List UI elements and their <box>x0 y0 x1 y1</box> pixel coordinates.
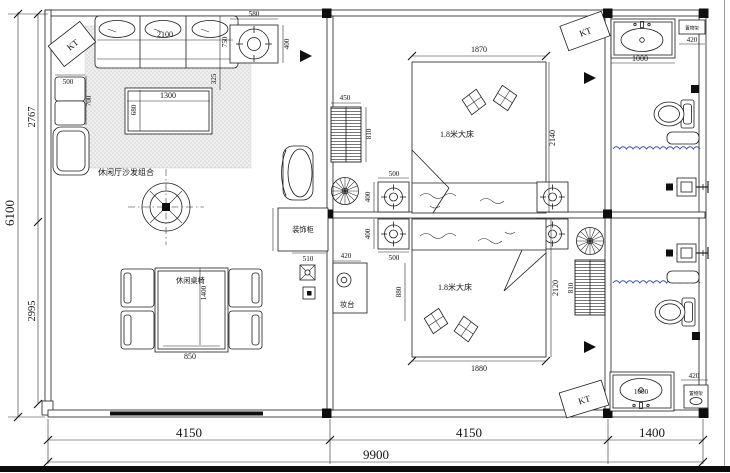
dim-sofa-w: 2100 <box>157 30 173 39</box>
dim-sofa-d: 750 <box>221 36 229 47</box>
dim-table-w: 850 <box>184 352 196 361</box>
label-sofa-zone: 休闲厅沙发组合 <box>98 167 154 177</box>
dim-light-h: 400 <box>283 38 291 49</box>
dim-bed1-l: 2140 <box>548 130 557 146</box>
marker-triangle-bath2 <box>584 341 596 353</box>
dim-bottom-total: 9900 <box>363 447 389 462</box>
dim-ns-top-d: 400 <box>364 191 372 202</box>
shelf-top-label: 置物架 <box>685 25 699 32</box>
dim-bed2-l: 2120 <box>551 280 560 296</box>
bottom-window-band <box>110 412 263 416</box>
side-tables <box>53 77 89 175</box>
fan-symbol-bed1 <box>332 178 359 205</box>
label-bed2: 1.8米大床 <box>438 282 472 292</box>
fan-symbol-bed2 <box>577 228 604 255</box>
wardrobe-unit-bed1 <box>331 107 361 162</box>
dim-side-d: 700 <box>85 95 93 106</box>
bath-mat-top <box>667 132 699 144</box>
floor-drain-bottom <box>692 332 700 340</box>
bath-mat-bottom <box>667 271 699 283</box>
shelf-bottom: 置物架 <box>684 385 708 408</box>
label-bed1: 1.8米大床 <box>440 129 474 139</box>
dim-left-lower: 2995 <box>27 301 38 322</box>
dim-bottom-left-bay: 4150 <box>176 425 202 440</box>
dim-coffee-w: 680 <box>130 104 138 115</box>
dim-shelf1-w: 420 <box>687 36 698 44</box>
dim-dresser-l: 880 <box>395 286 403 297</box>
power-outlet-symbols <box>300 265 315 299</box>
wardrobe-unit-bed2 <box>575 260 605 315</box>
dim-light-w: 580 <box>249 10 260 18</box>
toilet-top <box>654 100 694 128</box>
dimension-chain-left: 6100 2767 2995 <box>2 10 48 421</box>
dim-left-total: 6100 <box>2 200 17 226</box>
dim-bed2-w: 1880 <box>471 364 487 373</box>
dim-bottom-right-bay: 1400 <box>639 425 665 440</box>
dim-coffee-l: 1300 <box>160 91 176 100</box>
ceiling-light-symbol <box>230 25 278 63</box>
dim-ward2-d: 810 <box>567 282 575 293</box>
dim-ns-top-w: 500 <box>389 170 400 178</box>
floor-drain-top <box>691 85 699 93</box>
dim-left-upper: 2767 <box>27 107 38 128</box>
nightstand-bed1-left <box>378 182 409 212</box>
nightstand-bed2-left <box>378 219 409 249</box>
dim-ns-bot-d: 400 <box>364 228 372 239</box>
nightstand-bed1-right <box>537 182 568 212</box>
desk-chair <box>282 146 314 200</box>
ceiling-fan-symbol <box>128 169 204 245</box>
label-dining: 休闲桌椅 <box>176 276 205 285</box>
dim-table-l: 1400 <box>200 285 208 300</box>
toilet-bottom <box>655 298 695 326</box>
marker-triangle-living <box>300 50 312 62</box>
bed1 <box>412 62 546 213</box>
shower-curtain-line-top <box>613 147 700 149</box>
dim-dresser-w: 420 <box>341 252 352 260</box>
shelf-bottom-label: 置物架 <box>689 390 703 397</box>
page-bottom-border <box>0 466 730 472</box>
bed2 <box>412 219 546 357</box>
dim-ward1-w: 450 <box>340 94 351 102</box>
floor-plan-canvas: KT 置物架 <box>0 0 730 473</box>
marker-triangle-bath1 <box>584 72 596 84</box>
dim-vanity1-w: 1000 <box>632 54 648 63</box>
sofa <box>95 16 238 68</box>
label-cabinet: 装饰柜 <box>292 225 314 234</box>
vanity-top <box>611 19 675 58</box>
dim-bed1-w: 1870 <box>471 45 487 54</box>
dimension-chain-bottom: 4150 4150 1400 9900 <box>44 419 707 466</box>
label-dresser: 妆台 <box>340 300 354 309</box>
dim-vanity2-w: 1000 <box>634 388 649 396</box>
dim-cabinet-w: 510 <box>303 255 314 263</box>
shelf-top: 置物架 <box>679 20 705 34</box>
dim-side-w: 500 <box>63 78 74 86</box>
dim-ward1-d: 810 <box>365 128 373 139</box>
dim-bottom-mid-bay: 4150 <box>456 425 482 440</box>
kt-unit-top-right: KT <box>560 11 610 50</box>
dim-shelf2-w: 420 <box>689 372 700 380</box>
floor-plan-page: KT 置物架 <box>0 0 730 473</box>
dim-sofa-gap: 325 <box>210 73 218 84</box>
dim-ns-bot-w: 500 <box>389 254 400 262</box>
